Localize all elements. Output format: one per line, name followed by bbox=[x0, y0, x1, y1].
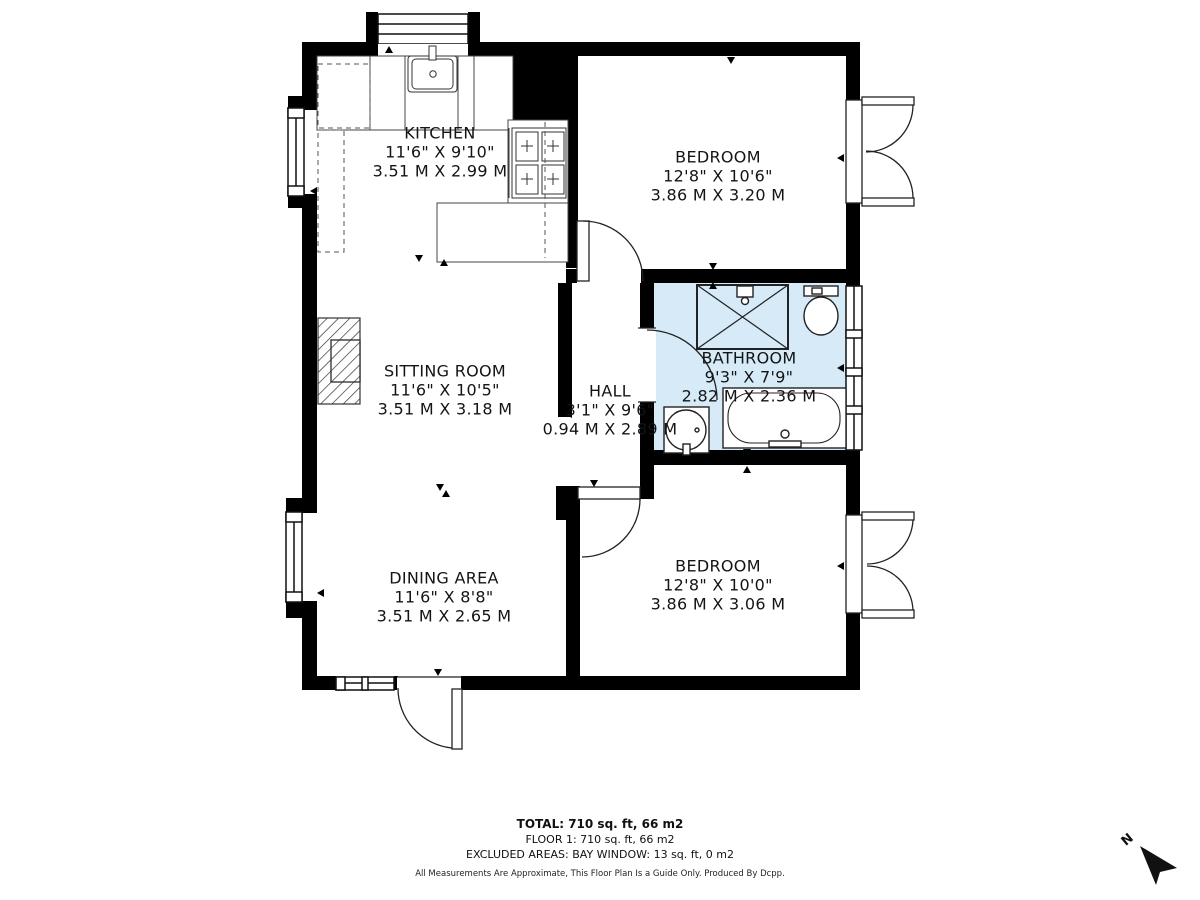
bedroom1-french-doors bbox=[846, 97, 914, 206]
kitchen-left-window bbox=[288, 108, 304, 196]
kitchen-top-window bbox=[366, 12, 480, 56]
room-dims-ft: 11'6" X 10'5" bbox=[378, 381, 513, 400]
bathroom-window bbox=[846, 286, 862, 450]
bedroom2-door bbox=[578, 487, 640, 557]
room-name: BEDROOM bbox=[651, 557, 786, 576]
room-dims-ft: 3'1" X 9'6" bbox=[543, 401, 678, 420]
bedroom1-door bbox=[577, 221, 643, 283]
room-name: KITCHEN bbox=[373, 124, 508, 143]
room-dims-m: 3.51 M X 2.99 M bbox=[373, 162, 508, 181]
room-dims-ft: 11'6" X 8'8" bbox=[377, 588, 512, 607]
room-label-bedroom-1: BEDROOM 12'8" X 10'6" 3.86 M X 3.20 M bbox=[651, 148, 786, 205]
room-name: HALL bbox=[543, 382, 678, 401]
room-label-kitchen: KITCHEN 11'6" X 9'10" 3.51 M X 2.99 M bbox=[373, 124, 508, 181]
dining-bay-window bbox=[286, 512, 302, 602]
dining-bottom-window bbox=[336, 677, 394, 690]
floor-plan-canvas: N KITCHEN 11'6" X 9'10" 3.51 M X 2.99 M … bbox=[0, 0, 1200, 900]
room-dims-ft: 9'3" X 7'9" bbox=[682, 368, 817, 387]
room-dims-ft: 11'6" X 9'10" bbox=[373, 143, 508, 162]
room-label-bedroom-2: BEDROOM 12'8" X 10'0" 3.86 M X 3.06 M bbox=[651, 557, 786, 614]
room-dims-m: 3.86 M X 3.06 M bbox=[651, 595, 786, 614]
room-name: SITTING ROOM bbox=[378, 362, 513, 381]
stove bbox=[509, 128, 566, 198]
fireplace bbox=[318, 318, 360, 404]
room-label-dining-area: DINING AREA 11'6" X 8'8" 3.51 M X 2.65 M bbox=[377, 569, 512, 626]
room-label-bathroom: BATHROOM 9'3" X 7'9" 2.82 M X 2.36 M bbox=[682, 349, 817, 406]
floor-area-text: FLOOR 1: 710 sq. ft, 66 m2 bbox=[0, 833, 1200, 846]
room-dims-m: 3.51 M X 2.65 M bbox=[377, 607, 512, 626]
room-label-sitting-room: SITTING ROOM 11'6" X 10'5" 3.51 M X 3.18… bbox=[378, 362, 513, 419]
total-area-text: TOTAL: 710 sq. ft, 66 m2 bbox=[0, 817, 1200, 831]
room-name: DINING AREA bbox=[377, 569, 512, 588]
entrance-door bbox=[397, 677, 462, 749]
room-dims-m: 3.86 M X 3.20 M bbox=[651, 186, 786, 205]
floor-plan-drawing: N bbox=[0, 0, 1200, 900]
room-dims-m: 2.82 M X 2.36 M bbox=[682, 387, 817, 406]
room-dims-m: 0.94 M X 2.89 M bbox=[543, 420, 678, 439]
excluded-areas-text: EXCLUDED AREAS: BAY WINDOW: 13 sq. ft, 0… bbox=[0, 848, 1200, 861]
disclaimer-text: All Measurements Are Approximate, This F… bbox=[0, 869, 1200, 879]
bedroom2-french-doors bbox=[846, 512, 914, 618]
room-dims-ft: 12'8" X 10'6" bbox=[651, 167, 786, 186]
toilet bbox=[804, 286, 838, 335]
kitchen-counter-lower bbox=[437, 203, 568, 262]
room-dims-m: 3.51 M X 3.18 M bbox=[378, 400, 513, 419]
room-dims-ft: 12'8" X 10'0" bbox=[651, 576, 786, 595]
room-name: BATHROOM bbox=[682, 349, 817, 368]
room-name: BEDROOM bbox=[651, 148, 786, 167]
room-label-hall: HALL 3'1" X 9'6" 0.94 M X 2.89 M bbox=[543, 382, 678, 439]
